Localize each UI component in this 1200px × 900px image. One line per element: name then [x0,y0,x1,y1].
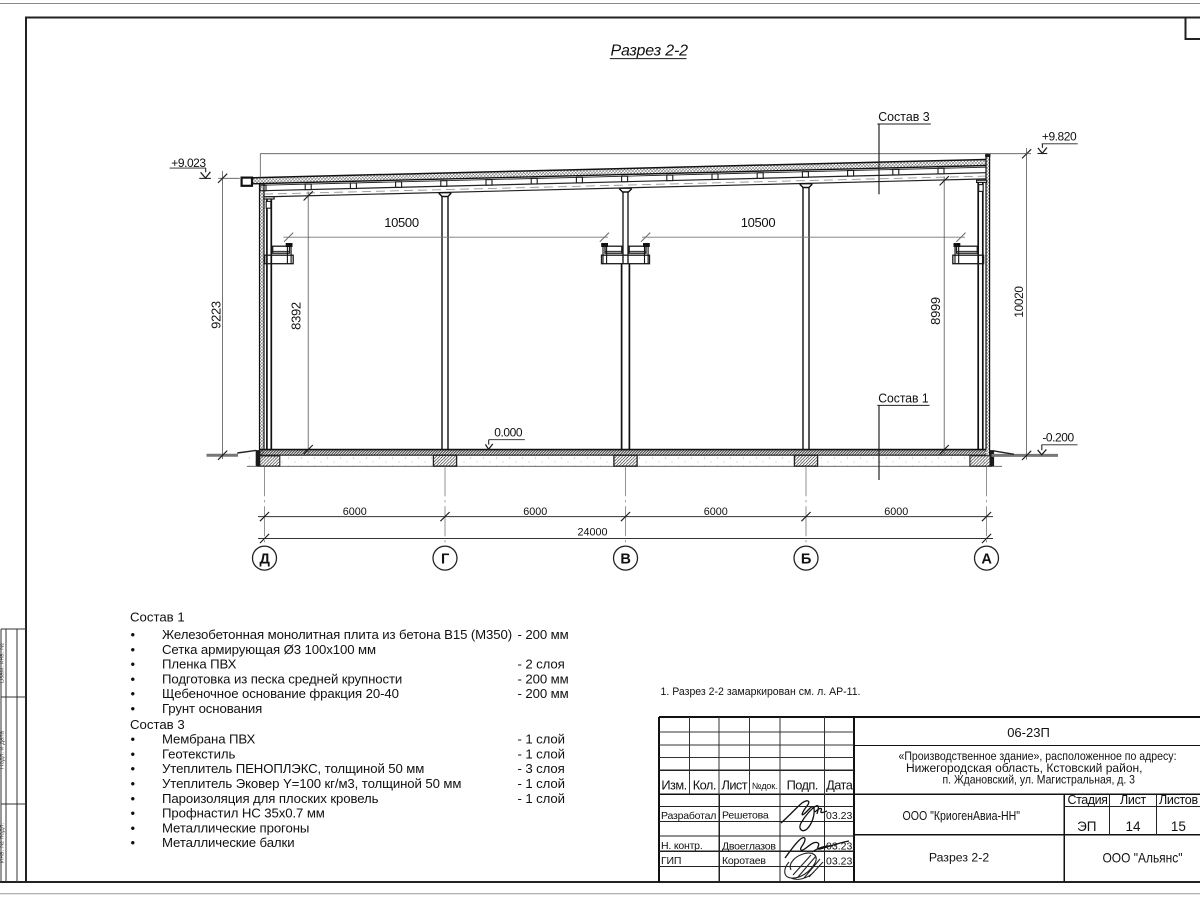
svg-text:Г: Г [441,551,449,567]
svg-text:•: • [131,627,136,642]
svg-text:•: • [131,701,136,716]
svg-text:•: • [131,761,136,776]
svg-text:Двоеглазов: Двоеглазов [722,840,776,852]
svg-text:Изм.: Изм. [661,778,686,793]
svg-text:•: • [131,732,136,747]
svg-text:Металлические балки: Металлические балки [162,835,294,850]
svg-text:Пленка ПВХ: Пленка ПВХ [162,657,237,672]
svg-text:0.000: 0.000 [494,426,523,440]
svg-text:Утеплитель ПЕНОПЛЭКС, толщиной: Утеплитель ПЕНОПЛЭКС, толщиной 50 мм [162,761,424,776]
svg-text:6000: 6000 [343,506,367,518]
svg-text:Железобетонная монолитная плит: Железобетонная монолитная плита из бетон… [162,627,512,642]
svg-text:Грунт основания: Грунт основания [162,701,262,716]
svg-text:Д: Д [259,551,270,567]
svg-text:Профнастил НС 35х0.7 мм: Профнастил НС 35х0.7 мм [162,806,325,821]
svg-text:03.23: 03.23 [826,810,852,822]
svg-text:03.23: 03.23 [826,855,852,867]
svg-text:Коротаев: Коротаев [722,855,766,867]
svg-text:Щебеночное основание фракция 2: Щебеночное основание фракция 20-40 [162,686,399,701]
svg-text:Листов: Листов [1159,793,1198,807]
svg-text:Пароизоляция для плоских крове: Пароизоляция для плоских кровель [162,791,379,806]
svg-text:Разрез 2-2: Разрез 2-2 [611,42,689,59]
svg-text:Лист: Лист [1120,793,1147,807]
svg-text:Разработал: Разработал [661,810,716,822]
svg-text:14: 14 [1125,819,1141,834]
svg-text:ООО "КриогенАвиа-НН": ООО "КриогенАвиа-НН" [903,809,1021,823]
svg-text:•: • [131,820,136,835]
svg-text:6000: 6000 [523,506,547,518]
svg-text:10500: 10500 [741,215,776,230]
svg-text:9223: 9223 [209,301,224,329]
svg-text:ЭП: ЭП [1077,819,1096,834]
svg-text:Инв. № подл.: Инв. № подл. [0,823,6,864]
svg-text:- 1 слой: - 1 слой [518,791,565,806]
svg-text:Н. контр.: Н. контр. [661,840,703,852]
svg-text:№док.: №док. [752,781,777,791]
svg-text:ГИП: ГИП [661,855,681,867]
svg-text:Подп. и дата: Подп. и дата [0,730,6,769]
svg-text:Подп.: Подп. [787,778,818,793]
svg-text:•: • [131,835,136,850]
svg-text:10500: 10500 [384,215,419,230]
svg-text:Состав 3: Состав 3 [130,717,185,732]
svg-text:Стадия: Стадия [1068,793,1108,807]
svg-text:•: • [131,791,136,806]
svg-text:•: • [131,776,136,791]
svg-text:6000: 6000 [884,506,908,518]
svg-text:Подготовка из песка средней кр: Подготовка из песка средней крупности [162,671,402,686]
svg-text:- 1 слой: - 1 слой [518,732,565,747]
svg-text:- 200 мм: - 200 мм [518,686,569,701]
svg-text:В: В [620,551,630,567]
svg-text:Б: Б [801,551,811,567]
svg-text:ООО "Альянс": ООО "Альянс" [1103,850,1183,866]
svg-text:- 1 слой: - 1 слой [518,776,565,791]
svg-text:Состав 1: Состав 1 [130,610,185,625]
svg-text:•: • [131,746,136,761]
svg-text:- 200 мм: - 200 мм [518,627,569,642]
svg-text:Состав 1: Состав 1 [878,392,929,406]
svg-text:•: • [131,806,136,821]
svg-text:•: • [131,657,136,672]
svg-text:Утеплитель Эковер Y=100 кг/м3,: Утеплитель Эковер Y=100 кг/м3, толщиной … [162,776,461,791]
svg-text:Состав 3: Состав 3 [878,110,930,124]
svg-text:8999: 8999 [928,297,943,325]
svg-text:- 3 слоя: - 3 слоя [518,761,565,776]
svg-text:А: А [981,551,992,567]
svg-text:Мембрана ПВХ: Мембрана ПВХ [162,732,255,747]
svg-text:- 200 мм: - 200 мм [518,671,569,686]
svg-text:•: • [131,686,136,701]
svg-text:п. Ждановский, ул. Магистральн: п. Ждановский, ул. Магистральная, д. 3 [943,773,1136,787]
svg-text:10020: 10020 [1012,286,1026,318]
svg-text:Решетова: Решетова [722,810,769,822]
svg-text:-0.200: -0.200 [1042,431,1074,445]
svg-text:- 1 слой: - 1 слой [518,746,565,761]
svg-text:•: • [131,642,136,657]
svg-text:Лист: Лист [721,778,747,793]
svg-text:8392: 8392 [289,302,304,330]
svg-text:Взам. инв. №: Взам. инв. № [0,643,6,683]
svg-text:- 2 слоя: - 2 слоя [518,657,565,672]
svg-text:Дата: Дата [826,778,854,793]
svg-text:Разрез 2-2: Разрез 2-2 [929,851,990,865]
svg-text:06-23П: 06-23П [1007,725,1050,740]
svg-text:+9.820: +9.820 [1042,129,1077,143]
svg-text:Сетка армирующая Ø3 100х100 мм: Сетка армирующая Ø3 100х100 мм [162,642,376,657]
svg-text:Геотекстиль: Геотекстиль [162,746,235,761]
svg-text:•: • [131,671,136,686]
svg-text:24000: 24000 [577,527,607,539]
svg-text:15: 15 [1171,819,1186,834]
svg-text:1. Разрез 2-2 замаркирован см.: 1. Разрез 2-2 замаркирован см. л. АР-11. [661,686,861,698]
svg-text:6000: 6000 [704,506,728,518]
svg-text:Металлические прогоны: Металлические прогоны [162,820,309,835]
svg-text:Кол.: Кол. [693,778,716,793]
